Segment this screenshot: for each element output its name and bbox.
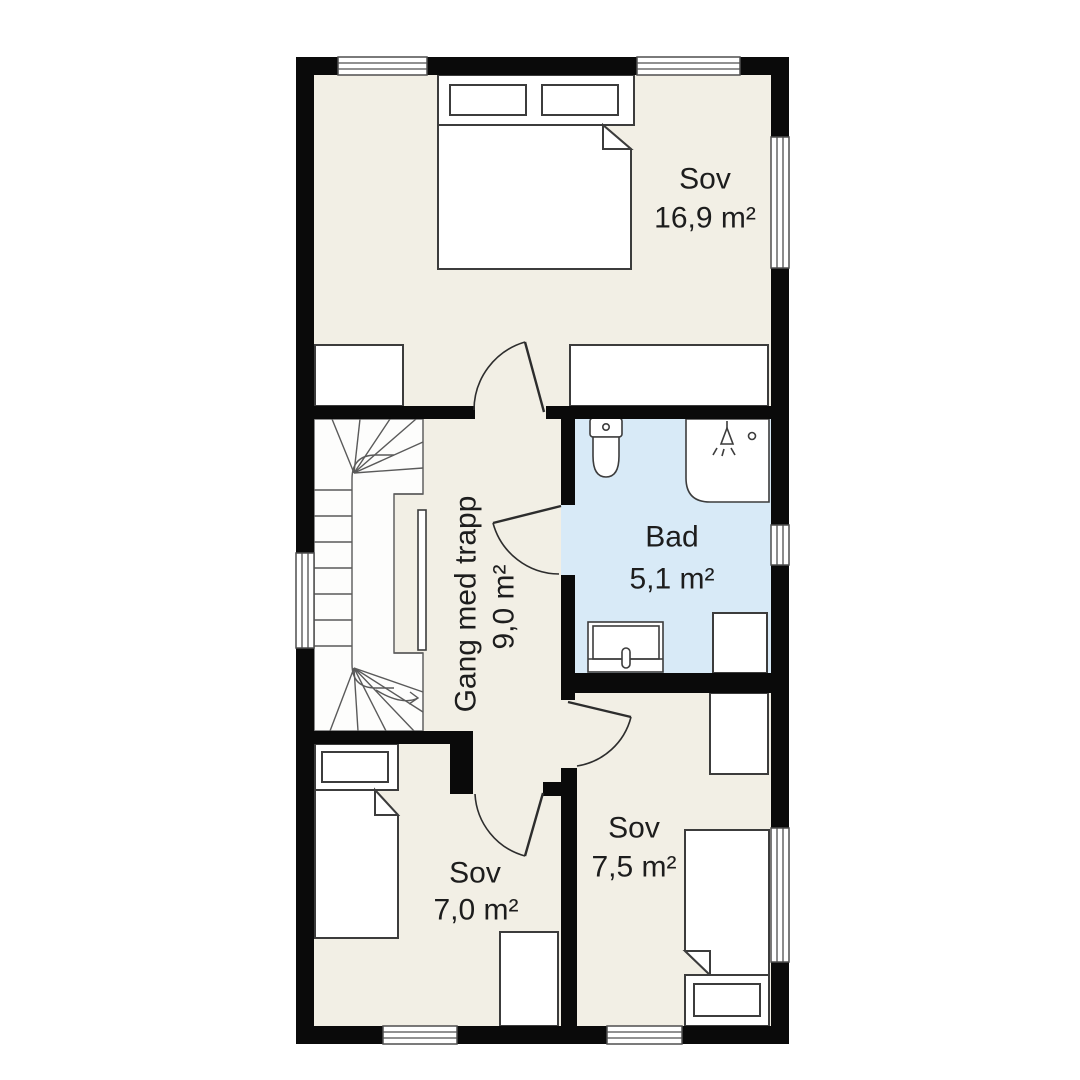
room-label-bedroom70-area: 7,0 m² [433,894,518,927]
pillow [322,752,388,782]
pillow [694,984,760,1016]
wall-bedroom70-nub [543,782,561,796]
wardrobe [315,345,403,406]
floor-plan: Sov 16,9 m² Bad 5,1 m² Gang med trapp 9,… [0,0,1080,1080]
pillow [450,85,526,115]
floor-plan-page: Sov 16,9 m² Bad 5,1 m² Gang med trapp 9,… [0,0,1080,1080]
wall-hall-bath-upper [561,406,575,505]
wardrobe [710,693,768,774]
wardrobe [570,345,768,406]
toilet-bowl [593,437,619,477]
window [383,1026,457,1044]
window [771,828,789,962]
wall-master-south-left [314,406,475,419]
room-label-bath-area: 5,1 m² [629,563,714,596]
window [771,137,789,268]
toilet-tank [590,418,622,437]
window [771,525,789,565]
stair-handrail [418,510,426,650]
room-label-master-name: Sov [679,163,731,196]
room-label-master-area: 16,9 m² [654,202,756,235]
pillow [542,85,618,115]
window [338,57,427,75]
wall-bedroom70-jamb [450,731,473,794]
wall-exterior-bottom [296,1026,789,1044]
wall-master-south-right [546,406,771,419]
room-label-hall-name: Gang med trapp [450,496,483,713]
window [296,553,314,648]
room-label-bath-name: Bad [645,521,698,554]
bathroom-cabinet [713,613,767,673]
room-label-bedroom75-area: 7,5 m² [591,851,676,884]
room-label-bedroom70-name: Sov [449,857,501,890]
wall-between-bedrooms [561,768,577,1026]
wardrobe [500,932,558,1026]
wall-exterior-left [296,57,314,1044]
room-label-bedroom75-name: Sov [608,812,660,845]
sink-tap [622,648,630,668]
window [607,1026,682,1044]
wall-stair-south [314,731,462,744]
window [637,57,740,75]
room-label-hall-area: 9,0 m² [488,564,521,649]
wall-bath-south [561,673,771,693]
